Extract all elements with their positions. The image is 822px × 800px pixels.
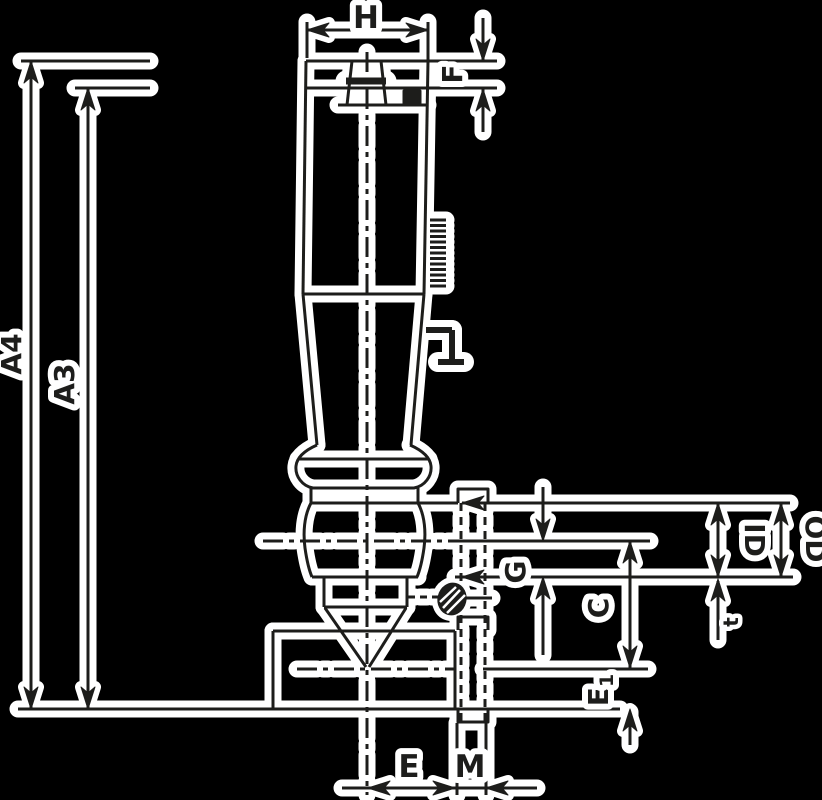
dim-label-e1: E1 [582,674,618,706]
dim-label-e1-sub: 1 [596,674,618,687]
dim-label-g: G [499,561,532,584]
dim-label-m: M [455,749,486,785]
dim-label-t: t [719,617,743,627]
dim-label-od: OD [799,515,822,562]
dimension-drawing-stage: H F A4 A3 G C ID OD t E1 E M [0,0,822,800]
dim-label-e: E [398,749,419,785]
dim-label-a3: A3 [48,363,81,404]
dim-label-e1-base: E [582,687,615,706]
dim-label-a4: A4 [0,333,28,374]
drawing-geometry [18,18,793,795]
dim-label-c: C [582,598,615,619]
dim-label-id: ID [738,523,771,557]
dim-label-f: F [436,64,469,83]
dimension-drawing: H F A4 A3 G C ID OD t E1 E M [0,0,822,800]
dim-label-h: H [353,0,379,36]
